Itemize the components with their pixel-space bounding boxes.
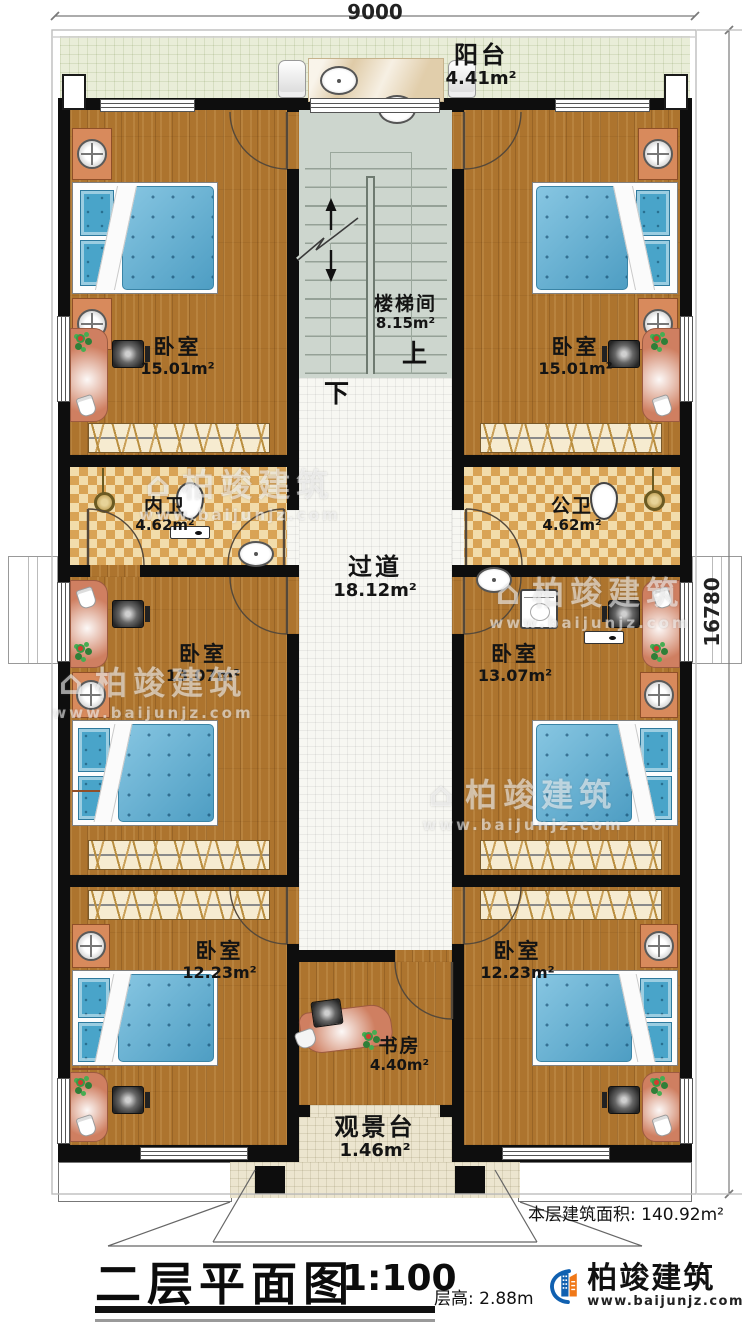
nightstand [72, 672, 110, 718]
plant-icon [652, 1078, 661, 1087]
nightstand [72, 1068, 110, 1070]
wardrobe [88, 890, 270, 920]
label-bedroom-bottom-left: 卧室 12.23m² [142, 940, 297, 981]
label-bath-right: 公卫 4.62m² [512, 496, 632, 534]
label-stairwell: 楼梯间 8.15m² [348, 294, 463, 332]
floor-area-note: 本层建筑面积: 140.92m² [528, 1200, 724, 1225]
label-balcony: 阳台 4.41m² [425, 42, 537, 89]
window [57, 582, 70, 662]
bay-window [8, 556, 58, 664]
sink-icon [238, 541, 274, 567]
window [680, 582, 693, 662]
window [310, 98, 440, 113]
brand-logo: 柏竣建筑 www.baijunjz.com [548, 1246, 744, 1326]
room-corridor [299, 378, 452, 950]
doorway [90, 565, 140, 577]
computer-monitor [608, 1086, 640, 1114]
floor-plan-canvas: 9000 16780 阳台 4.41m² [0, 0, 750, 1336]
title-underline [95, 1306, 435, 1313]
blanket [536, 724, 632, 822]
doorway [287, 577, 299, 634]
page-title: 二层平面图 [95, 1248, 355, 1314]
wardrobe [88, 423, 270, 453]
window [680, 316, 693, 402]
blanket [118, 724, 214, 822]
wardrobe [480, 423, 662, 453]
label-bath-left: 内卫 4.62m² [105, 496, 225, 534]
deck-platform-right [518, 1162, 692, 1202]
lamp-icon [644, 680, 674, 710]
dimension-right: 16780 [700, 572, 724, 652]
dimension-top: 9000 [345, 0, 405, 24]
plant-icon [76, 1078, 85, 1087]
stair-handrail [366, 176, 375, 374]
doorway [452, 577, 464, 634]
blanket [122, 186, 214, 290]
window [57, 1078, 70, 1144]
label-study: 书房 4.40m² [342, 1036, 457, 1074]
wardrobe [480, 840, 662, 870]
doorway [287, 112, 299, 169]
sink-icon [476, 567, 512, 593]
toilet-icon [584, 631, 624, 644]
label-bedroom-bottom-right: 卧室 12.23m² [440, 940, 595, 981]
doorway [452, 887, 464, 944]
doorway [287, 510, 299, 565]
title-underline-2 [95, 1319, 435, 1322]
doorway [452, 112, 464, 169]
doorway [287, 887, 299, 944]
sink-icon [320, 66, 358, 95]
window [140, 1147, 248, 1160]
window [555, 99, 650, 112]
flue-box [62, 74, 86, 110]
brand-logo-icon [548, 1255, 581, 1317]
lamp-icon [77, 139, 107, 169]
window [57, 316, 70, 402]
label-bedroom-top-left: 卧室 15.01m² [100, 336, 255, 377]
shower-icon [644, 490, 665, 511]
label-bedroom-mid-left: 卧室 13.07m² [128, 643, 278, 684]
stool-icon [278, 60, 306, 98]
computer-monitor [112, 600, 144, 628]
plant-icon [652, 644, 661, 653]
window [502, 1147, 610, 1160]
computer-monitor [310, 998, 343, 1028]
washing-machine-icon [520, 589, 558, 629]
nightstand [640, 672, 678, 718]
lamp-icon [643, 139, 673, 169]
blanket [118, 974, 214, 1062]
deck-platform-left [58, 1162, 232, 1202]
blanket [536, 186, 628, 290]
label-bedroom-mid-right: 卧室 13.07m² [440, 643, 590, 684]
label-corridor: 过道 18.12m² [305, 554, 445, 601]
plant-icon [76, 334, 85, 343]
nightstand [72, 128, 112, 180]
label-deck: 观景台 1.46m² [300, 1114, 450, 1161]
doorway [452, 510, 464, 565]
pillow [640, 728, 672, 772]
stair-down-label: 下 [324, 374, 349, 410]
computer-monitor [112, 1086, 144, 1114]
nightstand [640, 924, 678, 968]
label-bedroom-top-right: 卧室 15.01m² [498, 336, 653, 377]
window [100, 99, 195, 112]
brand-name: 柏竣建筑 [587, 1263, 744, 1295]
computer-monitor [608, 600, 640, 628]
lamp-icon [76, 680, 106, 710]
flue-box [664, 74, 688, 110]
wardrobe [88, 840, 270, 870]
wardrobe [480, 890, 662, 920]
plant-icon [652, 334, 661, 343]
plant-icon [76, 644, 85, 653]
nightstand [72, 924, 110, 968]
stair-up-label: 上 [402, 334, 427, 370]
window [680, 1078, 693, 1144]
brand-url: www.baijunjz.com [587, 1294, 744, 1309]
shower-cord [102, 468, 104, 494]
lamp-icon [76, 931, 106, 961]
nightstand [638, 128, 678, 180]
column [255, 1166, 285, 1194]
floor-height-note: 层高: 2.88m [434, 1284, 534, 1309]
shower-cord [652, 468, 654, 492]
lamp-icon [644, 931, 674, 961]
blanket [536, 974, 632, 1062]
column [455, 1166, 485, 1194]
